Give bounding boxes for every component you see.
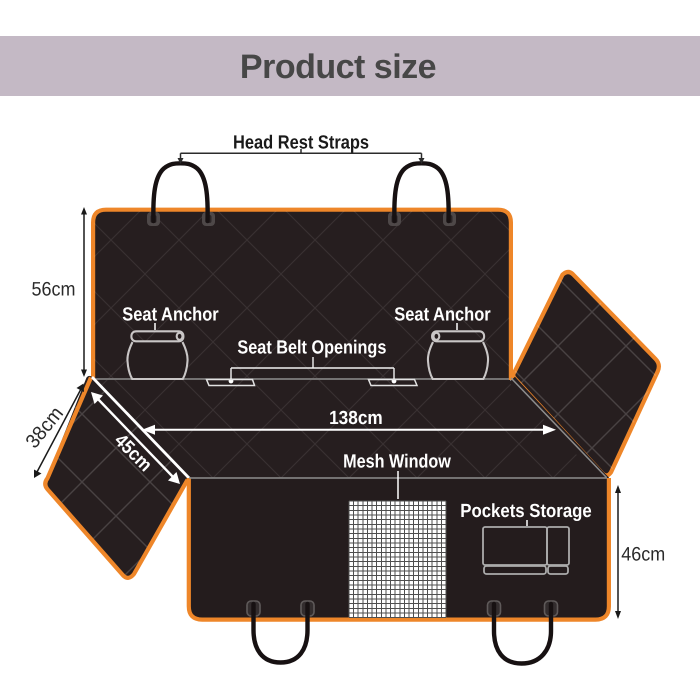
svg-text:Product size: Product size xyxy=(240,48,436,86)
svg-text:Mesh Window: Mesh Window xyxy=(343,452,451,473)
svg-text:138cm: 138cm xyxy=(329,408,383,429)
svg-text:Pockets Storage: Pockets Storage xyxy=(460,501,591,522)
svg-text:Seat Belt Openings: Seat Belt Openings xyxy=(237,338,386,359)
svg-text:46cm: 46cm xyxy=(621,544,665,566)
svg-text:56cm: 56cm xyxy=(32,279,76,301)
svg-text:Seat Anchor: Seat Anchor xyxy=(122,305,219,326)
svg-text:Seat Anchor: Seat Anchor xyxy=(394,305,491,326)
